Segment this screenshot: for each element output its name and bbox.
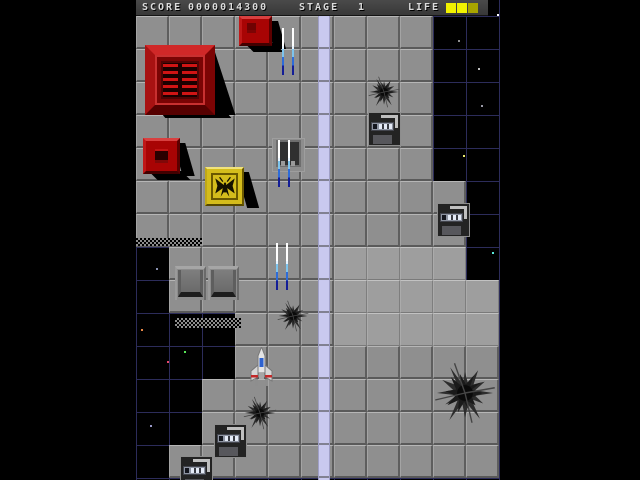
- star: [463, 155, 465, 157]
- life-cell: [468, 3, 478, 13]
- platform-tile: [334, 313, 367, 346]
- scorch-mark: [275, 298, 311, 334]
- game-screen: SCORE 0000014300 STAGE 1 LIFE: [0, 0, 640, 480]
- floor-tile: [367, 16, 400, 49]
- floor-tile: [202, 214, 235, 247]
- floor-tile: [367, 214, 400, 247]
- floor-tile: [334, 181, 367, 214]
- console-tile: [180, 456, 213, 480]
- hud-bar: SCORE 0000014300 STAGE 1 LIFE: [136, 0, 488, 16]
- life-meter: [446, 3, 478, 13]
- door-tile: [208, 266, 239, 300]
- score-label: SCORE: [142, 2, 182, 13]
- star: [458, 40, 460, 42]
- platform-tile: [367, 280, 400, 313]
- star: [167, 361, 169, 363]
- platform-tile: [400, 313, 433, 346]
- floor-tile: [367, 379, 400, 412]
- floor-tile: [400, 214, 433, 247]
- life-label: LIFE: [408, 2, 440, 13]
- stage-label: STAGE: [299, 2, 339, 13]
- red-block: [239, 16, 272, 46]
- floor-tile: [400, 148, 433, 181]
- floor-tile: [367, 148, 400, 181]
- star: [492, 252, 494, 254]
- floor-tile: [367, 445, 400, 478]
- star: [141, 329, 143, 331]
- floor-tile: [136, 181, 169, 214]
- platform-tile: [367, 247, 400, 280]
- floor-tile: [334, 445, 367, 478]
- floor-tile: [202, 115, 235, 148]
- platform-tile: [367, 313, 400, 346]
- floor-tile: [268, 445, 301, 478]
- terrain-dither-edge: [136, 238, 202, 246]
- floor-tile: [334, 16, 367, 49]
- floor-tile: [334, 49, 367, 82]
- floor-tile: [235, 280, 268, 313]
- floor-tile: [334, 346, 367, 379]
- floor-tile: [334, 412, 367, 445]
- platform-tile: [334, 280, 367, 313]
- platform-tile: [433, 247, 466, 280]
- score-value: 0000014300: [188, 2, 268, 13]
- platform-tile: [400, 247, 433, 280]
- console-tile: [214, 424, 247, 458]
- floor-tile: [334, 115, 367, 148]
- floor-tile: [169, 181, 202, 214]
- floor-tile: [367, 346, 400, 379]
- star: [481, 105, 483, 107]
- floor-tile: [367, 412, 400, 445]
- floor-tile: [400, 49, 433, 82]
- floor-tile: [235, 82, 268, 115]
- playfield[interactable]: [136, 0, 500, 480]
- floor-tile: [235, 247, 268, 280]
- star: [478, 68, 480, 70]
- terrain-dither-edge: [175, 318, 241, 328]
- red-pyramid-structure: [145, 45, 215, 115]
- floor-tile: [334, 214, 367, 247]
- star: [497, 14, 499, 16]
- floor-tile: [400, 82, 433, 115]
- platform-tile: [433, 280, 466, 313]
- red-block-small: [143, 138, 180, 174]
- player-shots: [282, 28, 294, 75]
- yellow-emblem-block: [205, 167, 244, 206]
- platform-tile: [466, 313, 499, 346]
- player-shots: [276, 243, 288, 290]
- platform-tile: [433, 313, 466, 346]
- floor-tile: [334, 82, 367, 115]
- floor-tile: [235, 214, 268, 247]
- door-tile: [175, 266, 206, 300]
- floor-tile: [235, 49, 268, 82]
- floor-tile: [400, 115, 433, 148]
- console-tile: [437, 203, 470, 237]
- platform-tile: [334, 247, 367, 280]
- stage-value: 1: [358, 2, 366, 13]
- console-tile: [368, 112, 401, 146]
- floor-tile: [400, 181, 433, 214]
- floor-tile: [367, 181, 400, 214]
- floor-tile: [400, 445, 433, 478]
- floor-tile: [433, 445, 466, 478]
- star: [150, 425, 152, 427]
- floor-tile: [268, 82, 301, 115]
- life-cell: [446, 3, 456, 13]
- road-strip: [318, 16, 330, 480]
- star: [156, 268, 158, 270]
- floor-tile: [235, 115, 268, 148]
- life-cell: [457, 3, 467, 13]
- floor-tile: [466, 445, 499, 478]
- player-shots: [278, 140, 290, 187]
- platform-tile: [466, 280, 499, 313]
- floor-tile: [400, 16, 433, 49]
- floor-tile: [202, 379, 235, 412]
- star: [184, 351, 186, 353]
- platform-tile: [400, 280, 433, 313]
- floor-tile: [334, 148, 367, 181]
- scorch-mark: [366, 74, 402, 110]
- player-ship: [249, 347, 274, 387]
- floor-tile: [334, 379, 367, 412]
- scorch-mark-large: [429, 358, 500, 428]
